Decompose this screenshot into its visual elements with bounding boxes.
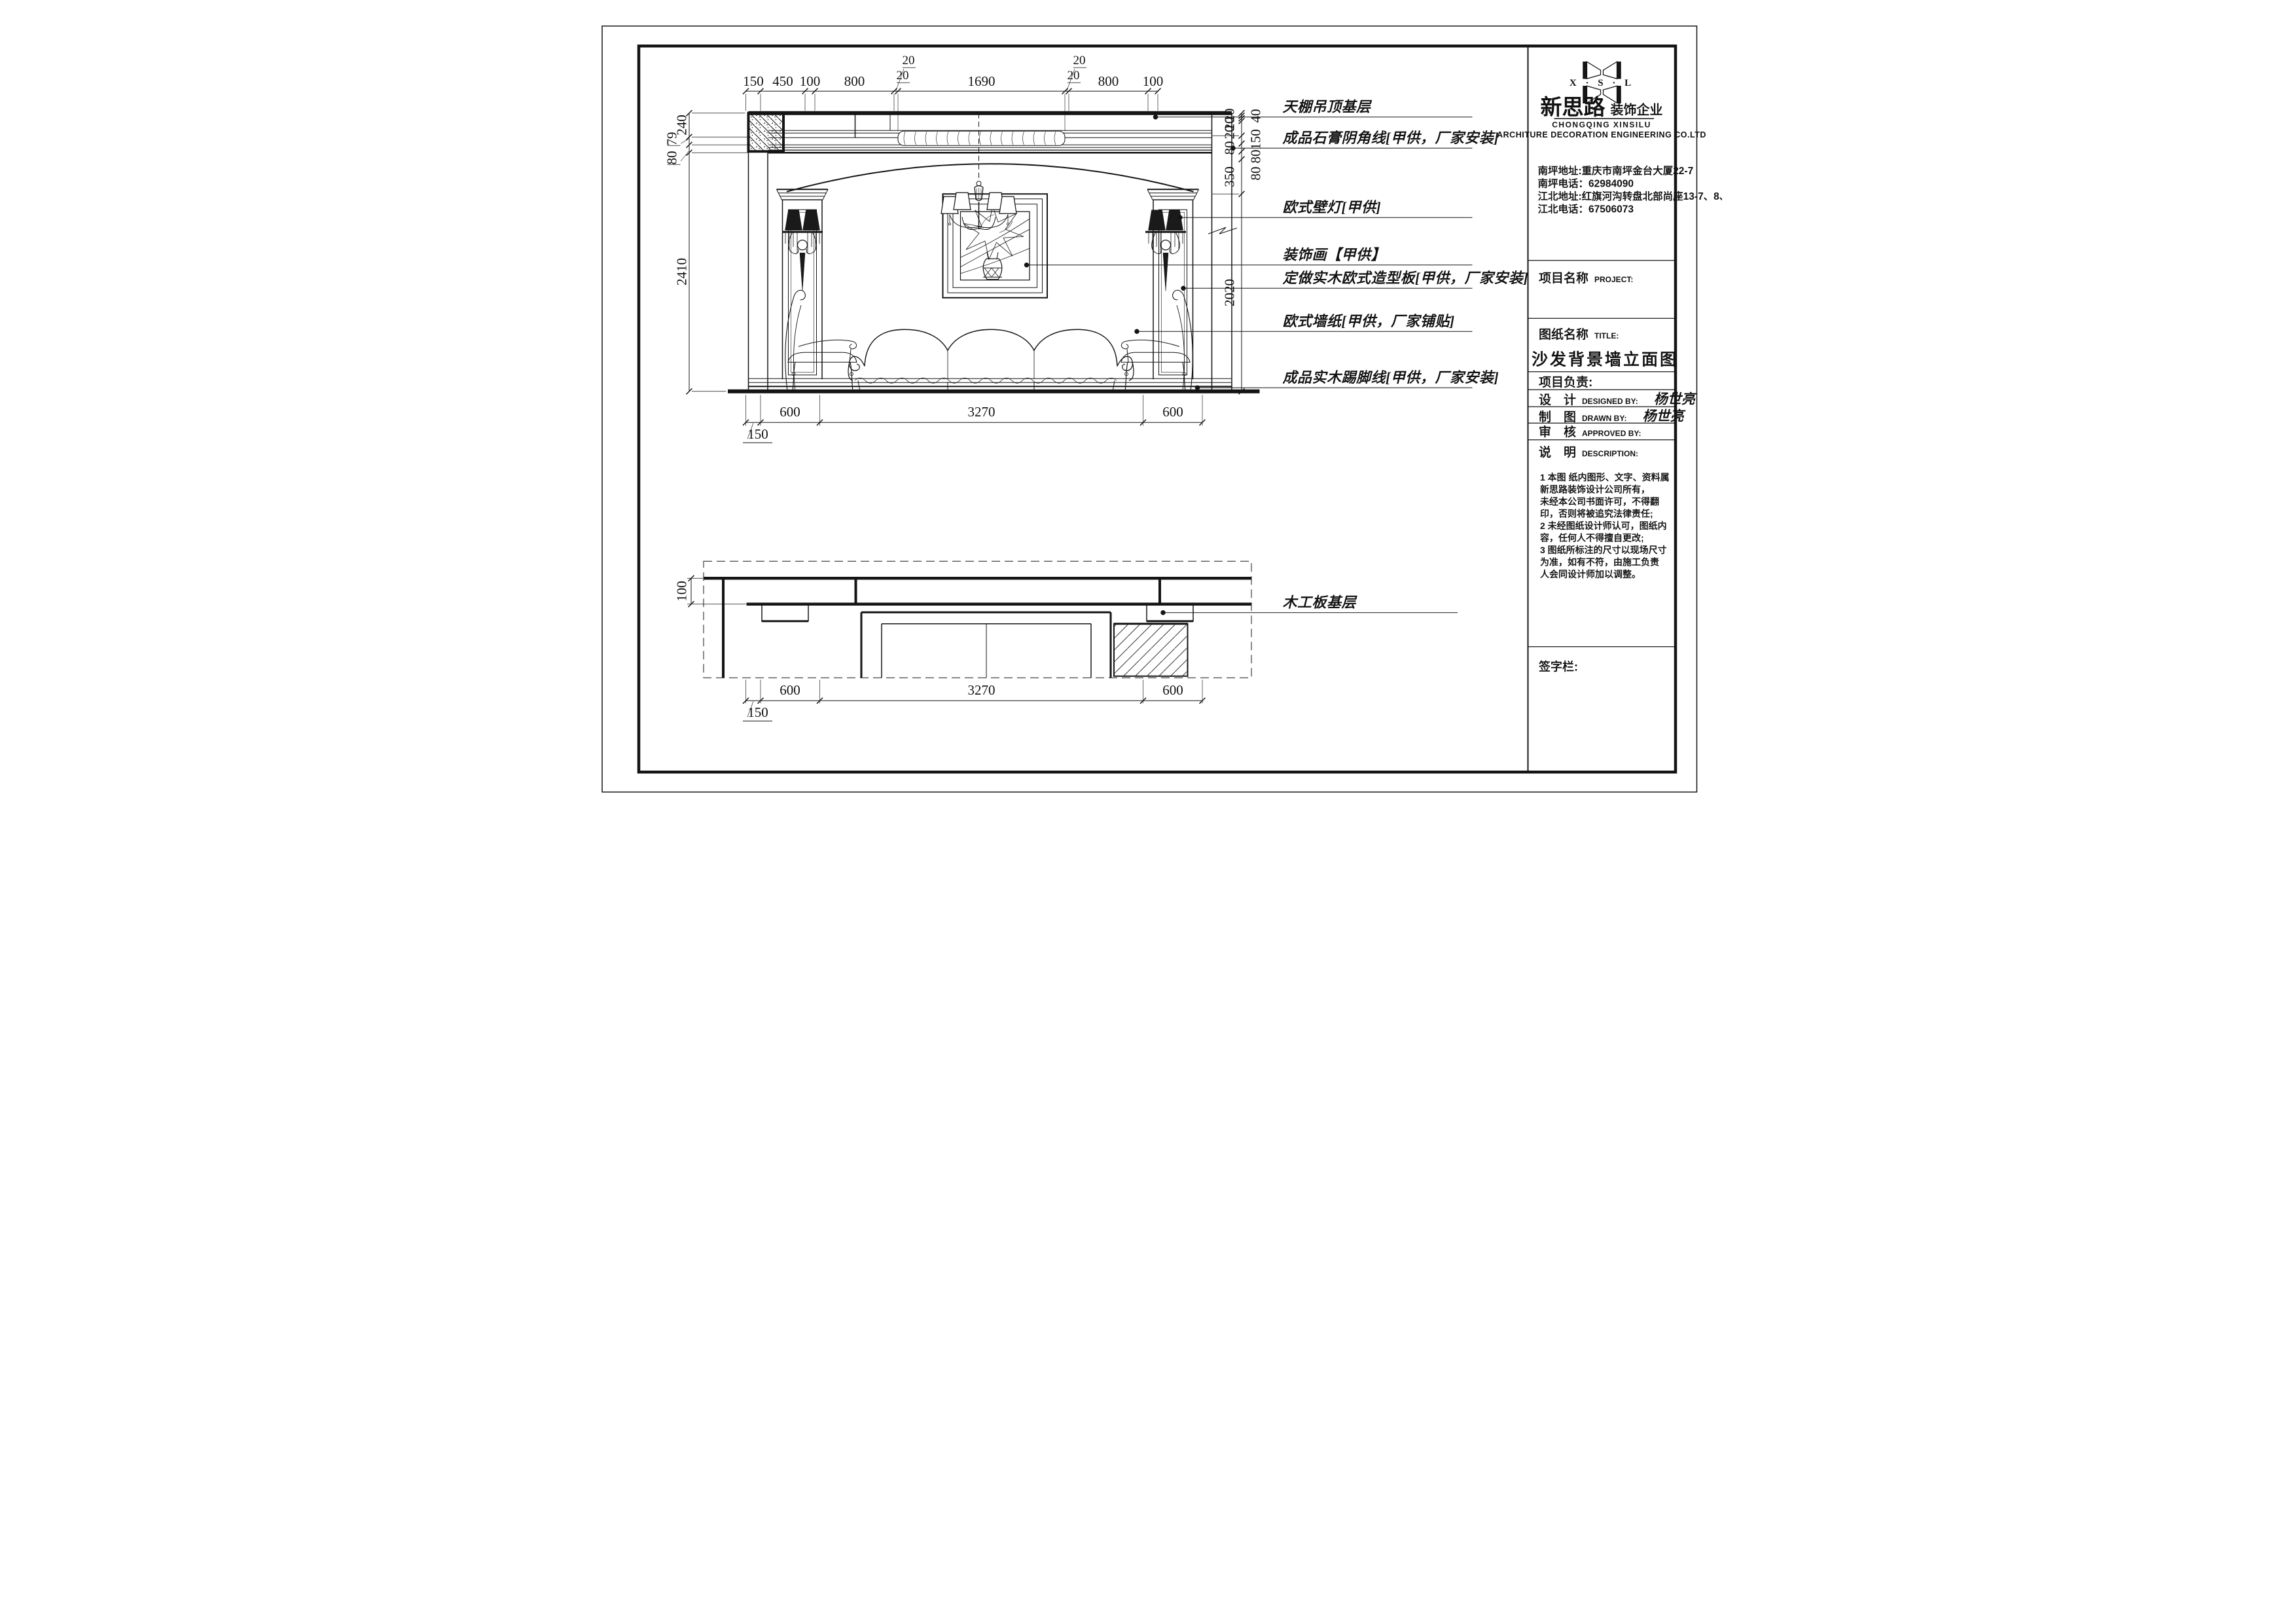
dim-top-150: 150 bbox=[743, 74, 764, 89]
dim-top-1690: 1690 bbox=[968, 74, 996, 89]
company-name: 新思路 装饰企业 bbox=[1541, 96, 1663, 118]
design-label-en: DESIGNED BY: bbox=[1582, 397, 1638, 407]
dim-bottom-3270: 3270 bbox=[968, 405, 996, 420]
phone-nanping: 南坪电话：62984090 bbox=[1538, 177, 1634, 191]
dim-right-80a: 80 bbox=[1223, 141, 1238, 155]
dim-right-350: 350 bbox=[1223, 166, 1238, 187]
draft-label: 制 图 bbox=[1539, 410, 1576, 424]
description-notes: 1 本图 纸内图形、文字、资料属 新思路装饰设计公司所有， 未经本公司书面许可，… bbox=[1540, 471, 1677, 581]
drawn-by-row: 制 图 DRAWN BY: 杨世亮 bbox=[1539, 409, 1683, 424]
dim-plan-3270: 3270 bbox=[968, 683, 996, 698]
address-jiangbei: 江北地址:红旗河沟转盘北部尚座13-7、8、9 bbox=[1538, 190, 1723, 203]
logo-xsl-text: X · S · L bbox=[1570, 77, 1634, 88]
drawing-sheet: 天棚吊顶基层 成品石膏阴角线[甲供，厂家安装] 欧式壁灯[甲供] 装饰画【甲供】… bbox=[574, 0, 1722, 812]
sheet-name-label: 图纸名称 bbox=[1539, 328, 1588, 341]
drawing-title: 沙发背景墙立面图 bbox=[1532, 346, 1678, 370]
project-label: 项目名称 bbox=[1539, 272, 1588, 285]
dim-left-79: 79 bbox=[665, 132, 680, 146]
signature-label: 签字栏: bbox=[1539, 657, 1578, 674]
dim-plan-600a: 600 bbox=[780, 683, 800, 698]
annotation-wall-lamp: 欧式壁灯[甲供] bbox=[1283, 199, 1382, 216]
annotation-decor-painting: 装饰画【甲供】 bbox=[1283, 247, 1386, 264]
dim-right-2020: 2020 bbox=[1223, 279, 1238, 306]
phone-jiangbei: 江北电话：67506073 bbox=[1538, 203, 1634, 216]
dim-left-80: 80 bbox=[665, 151, 680, 165]
dim-right-80c: 80 bbox=[1249, 167, 1264, 181]
description-label-en: DESCRIPTION: bbox=[1582, 449, 1638, 459]
dim-plan-600b: 600 bbox=[1162, 683, 1183, 698]
draft-label-en: DRAWN BY: bbox=[1582, 414, 1626, 424]
approve-label: 审 核 bbox=[1539, 426, 1576, 439]
dim-bottom-600a: 600 bbox=[780, 405, 800, 420]
project-label-en: PROJECT: bbox=[1594, 275, 1633, 285]
sheet-name-row: 图纸名称 TITLE: bbox=[1539, 328, 1619, 341]
dim-bottom-600b: 600 bbox=[1162, 405, 1183, 420]
dim-top-20a: 20 bbox=[897, 69, 909, 82]
dim-top-100b: 100 bbox=[1143, 74, 1164, 89]
dim-top-20b: 20 bbox=[903, 54, 915, 67]
dim-top-20c: 20 bbox=[1067, 69, 1080, 82]
pm-label: 项目负责: bbox=[1539, 376, 1592, 389]
dim-top-800b: 800 bbox=[1098, 74, 1119, 89]
dim-right-20c: 20 bbox=[1223, 126, 1238, 139]
dim-right-40: 40 bbox=[1249, 109, 1264, 123]
dim-bottom-150: 150 bbox=[747, 427, 768, 442]
company-name-cn: 新思路 bbox=[1541, 96, 1605, 118]
address-nanping: 南坪地址:重庆市南坪金台大厦22-7 bbox=[1538, 164, 1694, 177]
dim-plan-100: 100 bbox=[675, 581, 690, 602]
annotation-skirting: 成品实木踢脚线[甲供，厂家安装] bbox=[1283, 369, 1499, 386]
description-row: 说 明 DESCRIPTION: bbox=[1539, 446, 1638, 459]
pm-row: 项目负责: bbox=[1539, 376, 1592, 389]
dim-right-80b: 80 bbox=[1249, 150, 1264, 164]
annotation-wood-panel: 定做实木欧式造型板[甲供，厂家安装] bbox=[1283, 270, 1529, 287]
designed-by-row: 设 计 DESIGNED BY: 杨世亮 bbox=[1539, 392, 1695, 407]
sheet-name-label-en: TITLE: bbox=[1594, 331, 1619, 341]
dim-top-20d: 20 bbox=[1073, 54, 1086, 67]
approved-by-row: 审 核 APPROVED BY: bbox=[1539, 426, 1641, 439]
annotation-plaster-cove: 成品石膏阴角线[甲供，厂家安装] bbox=[1283, 130, 1499, 147]
dim-top-100: 100 bbox=[800, 74, 821, 89]
text-overlay: 天棚吊顶基层 成品石膏阴角线[甲供，厂家安装] 欧式壁灯[甲供] 装饰画【甲供】… bbox=[574, 0, 1722, 812]
dim-top-450: 450 bbox=[772, 74, 793, 89]
design-label: 设 计 bbox=[1539, 393, 1576, 407]
annotation-wallpaper: 欧式墙纸[甲供，厂家铺贴] bbox=[1283, 313, 1455, 330]
annotation-ceiling-base: 天棚吊顶基层 bbox=[1283, 99, 1371, 116]
description-label: 说 明 bbox=[1539, 446, 1576, 459]
dim-left-2410: 2410 bbox=[675, 258, 690, 285]
approve-label-en: APPROVED BY: bbox=[1582, 429, 1641, 439]
annotation-plywood-base: 木工板基层 bbox=[1283, 594, 1357, 611]
company-en-2: ARCHITURE DECORATION ENGINEERING CO.LTD bbox=[1497, 130, 1706, 140]
project-name-row: 项目名称 PROJECT: bbox=[1539, 272, 1633, 285]
dim-right-150: 150 bbox=[1249, 129, 1264, 150]
dim-top-800a: 800 bbox=[844, 74, 865, 89]
dim-plan-150: 150 bbox=[747, 705, 768, 720]
designer-name: 杨世亮 bbox=[1654, 392, 1695, 407]
company-name-suffix: 装饰企业 bbox=[1611, 102, 1663, 118]
drafter-name: 杨世亮 bbox=[1642, 409, 1683, 424]
company-en-1: CHONGQING XINSILU bbox=[1552, 120, 1651, 130]
